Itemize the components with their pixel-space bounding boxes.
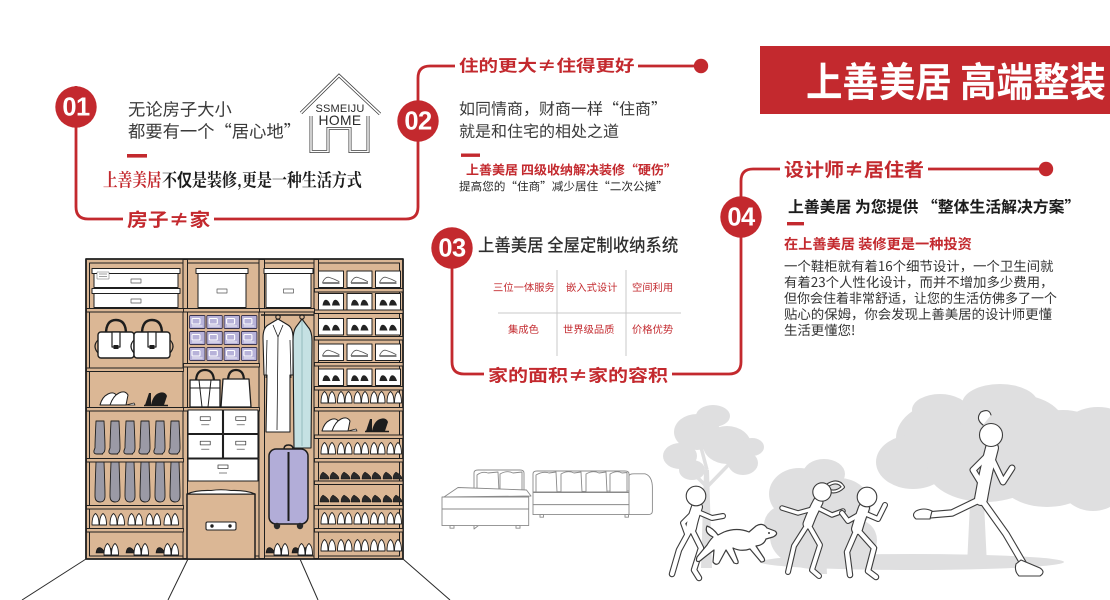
svg-text:04: 04 [727, 204, 756, 232]
svg-text:02: 02 [404, 108, 432, 136]
svg-text:01: 01 [62, 94, 90, 122]
svg-text:HOME: HOME [319, 113, 362, 128]
svg-text:03: 03 [438, 235, 466, 263]
